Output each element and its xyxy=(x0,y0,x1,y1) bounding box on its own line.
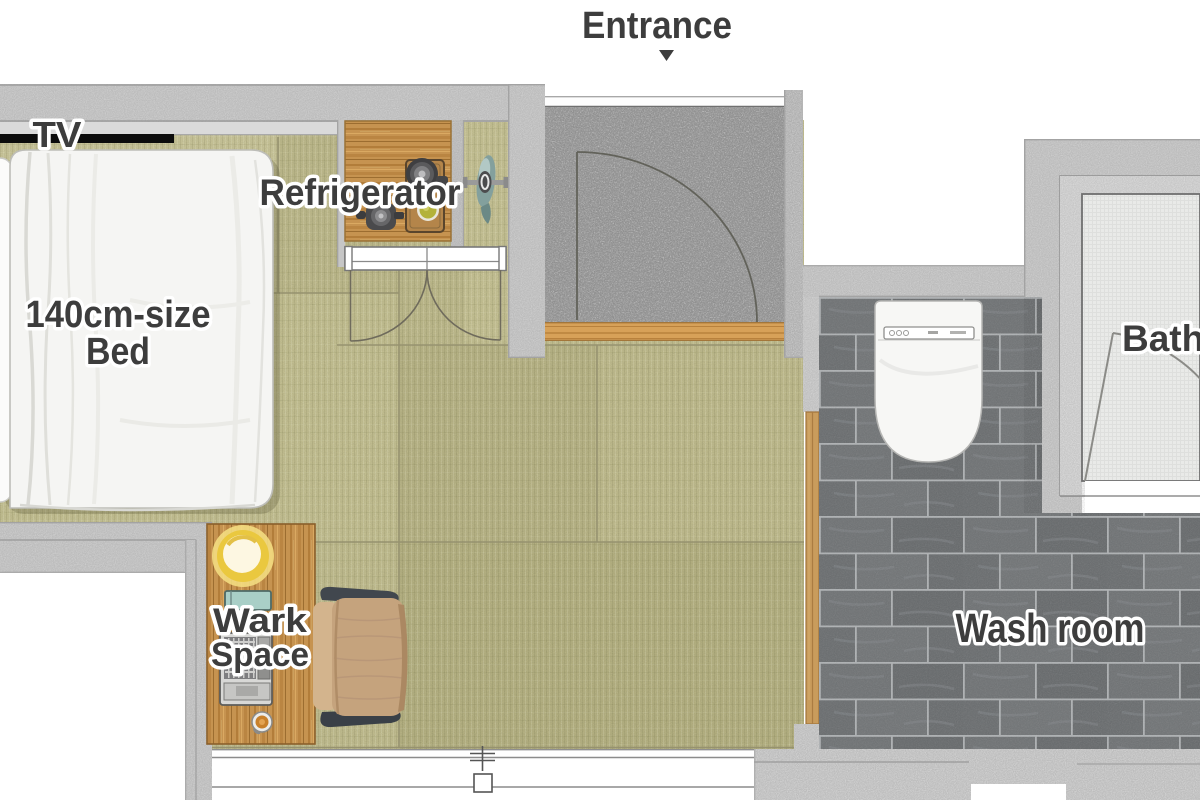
svg-text:Refrigerator: Refrigerator xyxy=(260,172,461,213)
svg-text:TV: TV xyxy=(33,114,82,155)
svg-text:Entrance: Entrance xyxy=(582,5,732,47)
svg-text:Space: Space xyxy=(211,636,309,674)
svg-text:140cm-size: 140cm-size xyxy=(26,294,211,336)
svg-text:Bath room: Bath room xyxy=(1122,318,1200,359)
svg-text:Bed: Bed xyxy=(86,331,150,373)
svg-text:Wash room: Wash room xyxy=(956,605,1145,651)
svg-text:Wark: Wark xyxy=(213,602,307,640)
